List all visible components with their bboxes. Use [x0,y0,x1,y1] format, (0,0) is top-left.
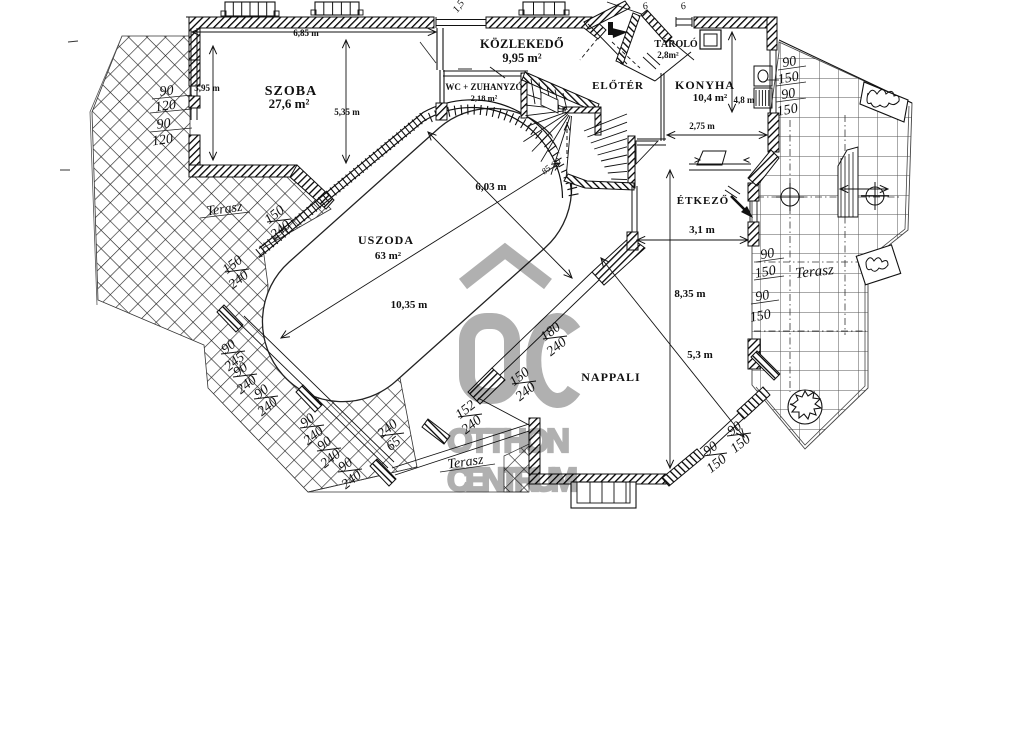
svg-text:3,95 m: 3,95 m [194,83,220,93]
svg-text:ÉTKEZŐ: ÉTKEZŐ [677,195,729,207]
svg-text:2,75 m: 2,75 m [689,121,715,131]
svg-text:5,35 m: 5,35 m [334,107,360,117]
svg-text:10,4 m²: 10,4 m² [693,92,728,104]
svg-text:8,35 m: 8,35 m [674,288,705,300]
svg-text:10,35 m: 10,35 m [391,299,428,311]
svg-text:120: 120 [154,98,177,116]
svg-text:9,95 m²: 9,95 m² [502,51,541,65]
svg-text:ELŐTÉR: ELŐTÉR [592,80,644,92]
svg-text:WC + ZUHANYZÓ: WC + ZUHANYZÓ [445,82,522,92]
svg-text:2,18 m²: 2,18 m² [471,93,498,103]
svg-text:2,8m²: 2,8m² [657,50,679,60]
svg-text:3,1 m: 3,1 m [689,224,715,236]
svg-text:TÁROLÓ: TÁROLÓ [654,38,698,50]
svg-text:KONYHA: KONYHA [675,78,735,92]
svg-text:27,6 m²: 27,6 m² [269,96,310,111]
svg-text:6,85 m: 6,85 m [293,28,319,38]
svg-text:63 m²: 63 m² [375,250,402,262]
svg-text:120: 120 [151,132,174,150]
svg-text:OTTHON: OTTHON [447,422,569,459]
svg-text:5,3 m: 5,3 m [687,349,713,361]
svg-text:KÖZLEKEDŐ: KÖZLEKEDŐ [480,36,564,51]
svg-text:4,8 m: 4,8 m [734,95,756,105]
svg-text:USZODA: USZODA [358,233,414,247]
svg-text:NAPPALI: NAPPALI [581,370,640,384]
svg-text:CENTRUM: CENTRUM [447,461,577,498]
svg-text:6,03 m: 6,03 m [475,181,506,193]
